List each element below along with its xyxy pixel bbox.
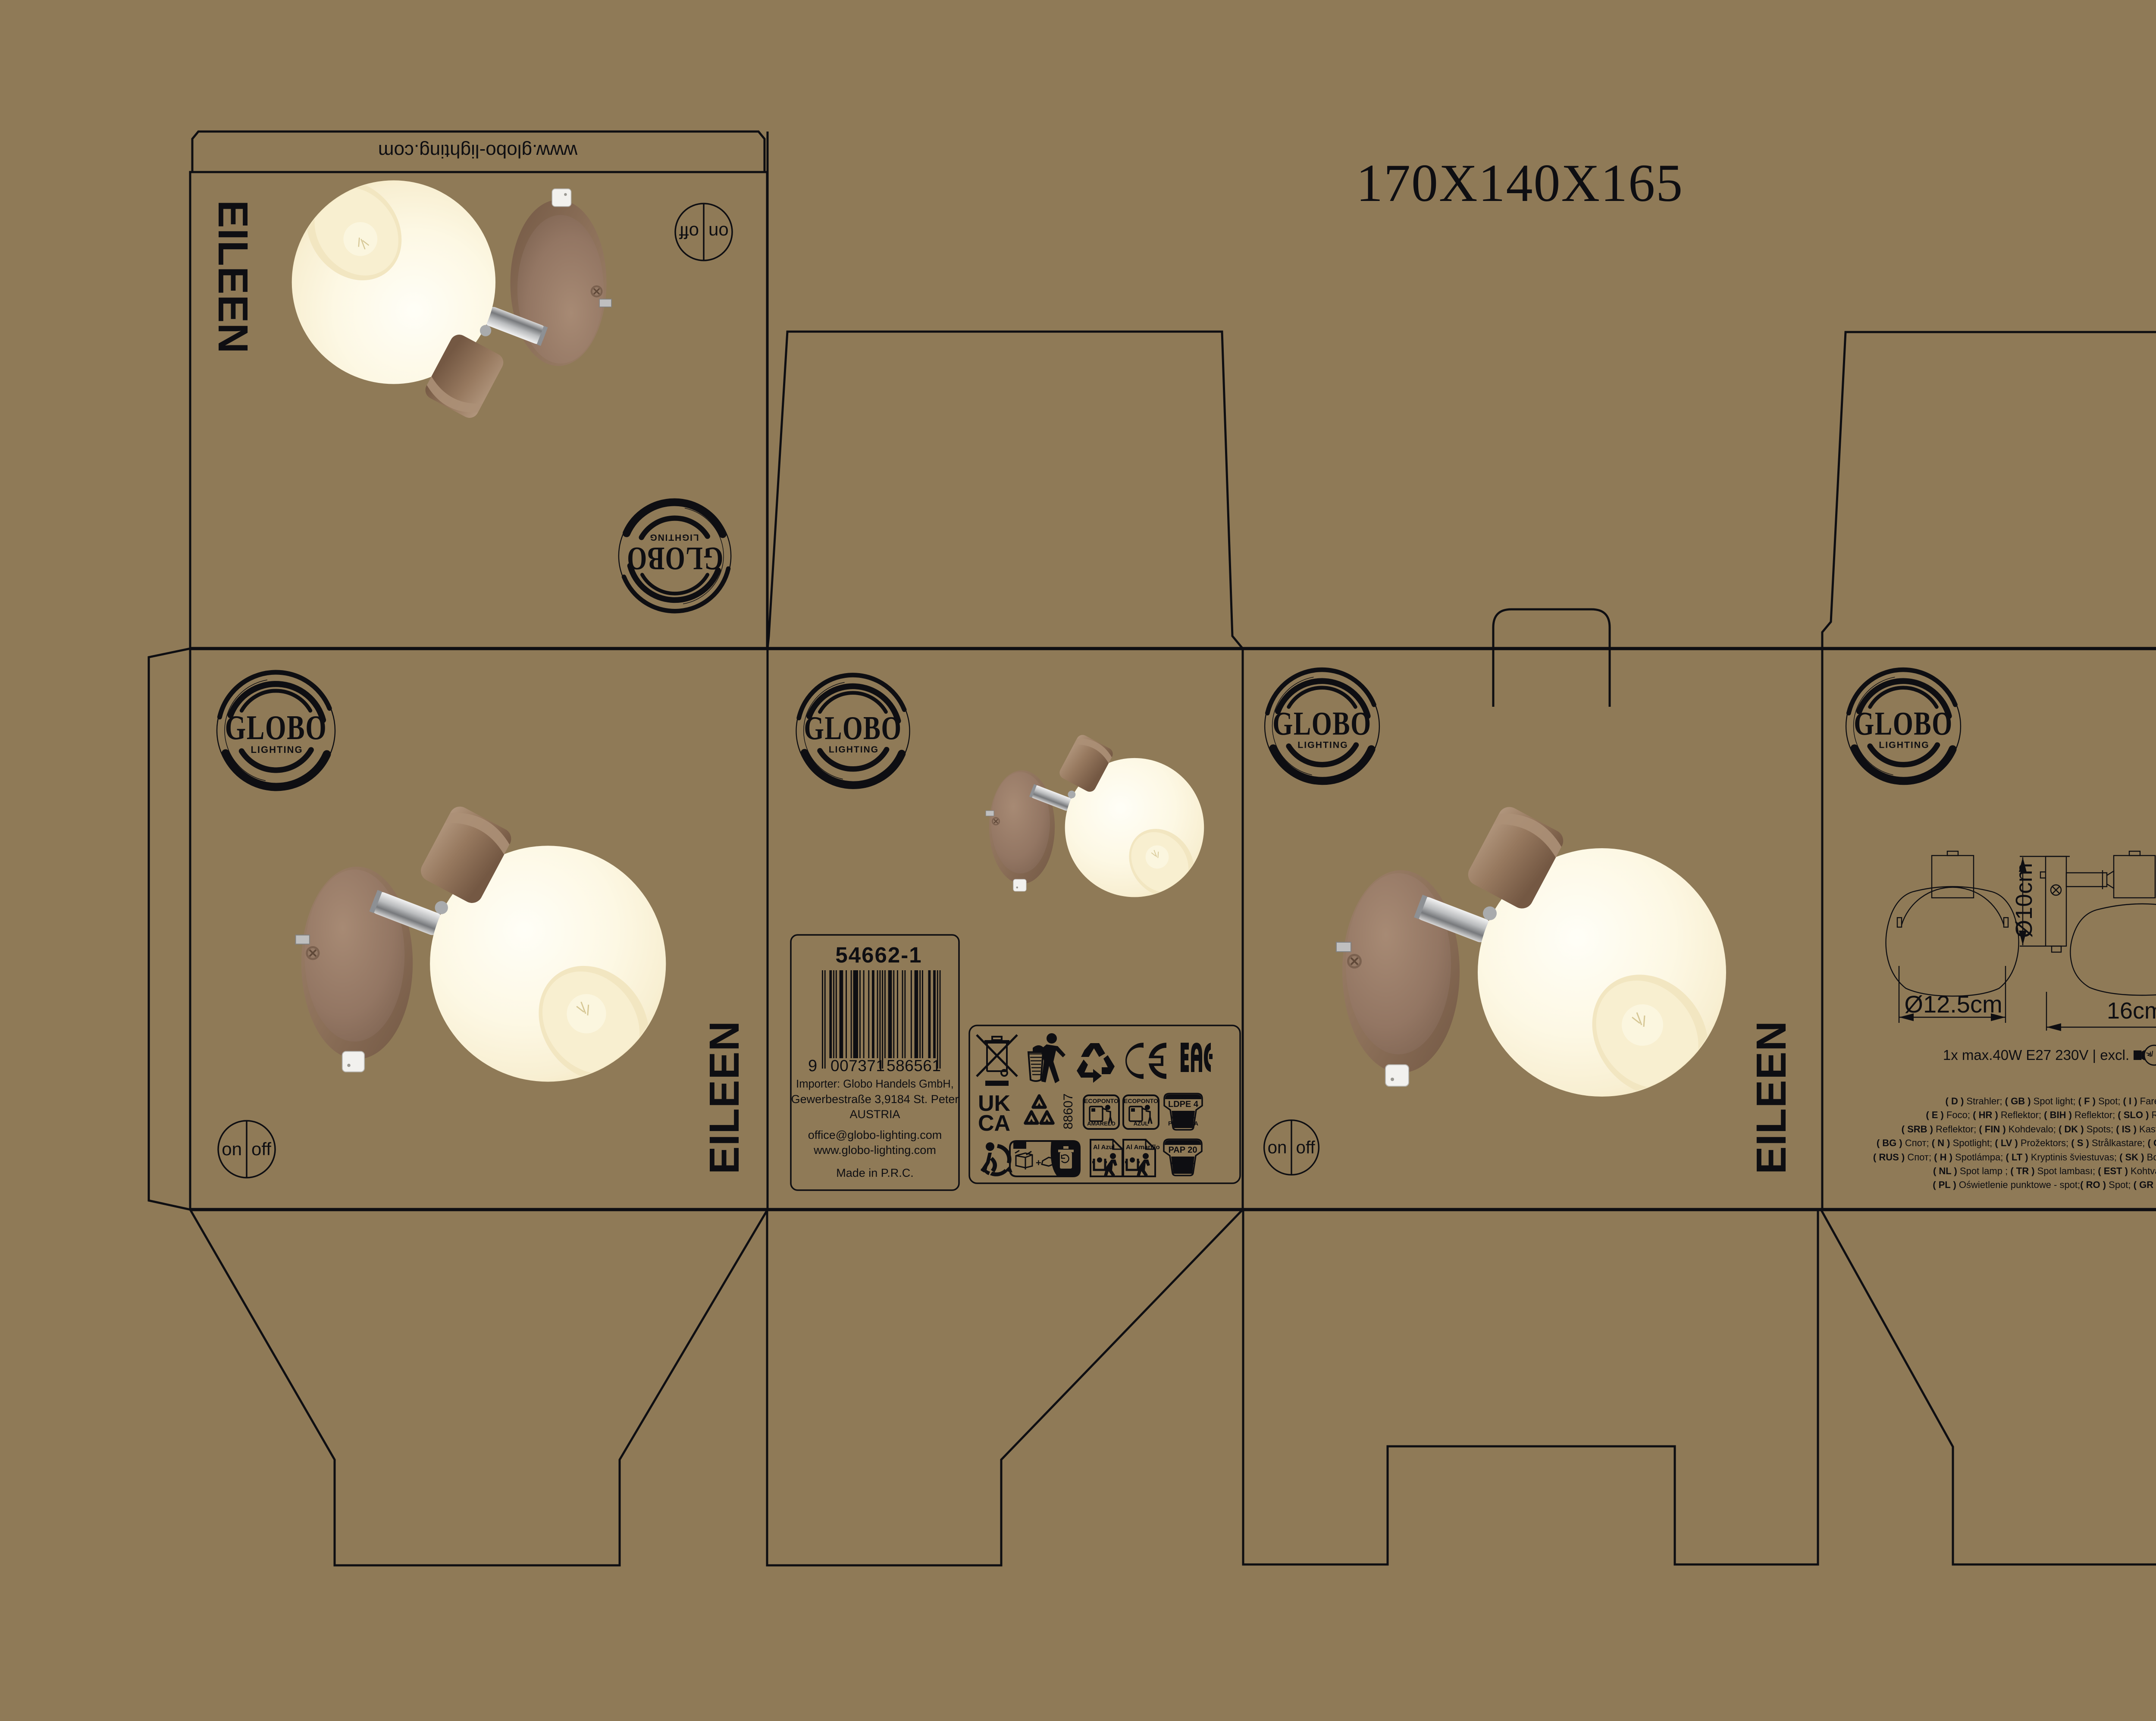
svg-text:9: 9	[808, 1057, 817, 1075]
svg-text:ECOPONTO: ECOPONTO	[1084, 1097, 1119, 1104]
svg-text:( E ) Foco; ( HR ) Reflektor;: ( E ) Foco; ( HR ) Reflektor; ( BIH ) Re…	[1926, 1110, 2156, 1120]
svg-text:54662-1: 54662-1	[835, 943, 922, 967]
svg-text:170X140X165: 170X140X165	[1356, 154, 1683, 213]
svg-text:www.globo-lighting.com: www.globo-lighting.com	[378, 141, 578, 162]
svg-text:SCATOLA: SCATOLA	[1173, 1141, 1193, 1145]
svg-text:EILEEN: EILEEN	[1748, 1021, 1795, 1174]
svg-text:AZUL: AZUL	[1134, 1120, 1149, 1127]
svg-text:( PL ) Oświetlenie punktowe -: ( PL ) Oświetlenie punktowe - spot;( RO …	[1933, 1179, 2156, 1190]
svg-text:FR: FR	[1016, 1142, 1024, 1149]
svg-text:EILEEN: EILEEN	[701, 1021, 748, 1174]
svg-text:586561: 586561	[887, 1057, 941, 1075]
svg-text:EILEEN: EILEEN	[210, 200, 257, 354]
svg-text:office@globo-lighting.com: office@globo-lighting.com	[808, 1129, 942, 1141]
svg-text:Made in P.R.C.: Made in P.R.C.	[836, 1166, 914, 1179]
svg-text:www.globo-lighting.com: www.globo-lighting.com	[813, 1144, 936, 1157]
svg-text:007371: 007371	[830, 1057, 885, 1075]
svg-text:88607: 88607	[1061, 1094, 1075, 1129]
svg-text:Ø10cm: Ø10cm	[2011, 863, 2037, 938]
svg-text:Ø12.5cm: Ø12.5cm	[1904, 991, 2002, 1018]
svg-text:Al Amarillo: Al Amarillo	[1126, 1144, 1160, 1151]
svg-text:Gewerbestraße 3,9184 St. Peter: Gewerbestraße 3,9184 St. Peter	[791, 1093, 959, 1106]
svg-text:( NL ) Spot lamp ; ( TR ) Spot: ( NL ) Spot lamp ; ( TR ) Spot lambası; …	[1933, 1166, 2156, 1176]
svg-text:PLASTICA: PLASTICA	[1168, 1120, 1198, 1127]
svg-text:1x max.40W E27 230V | excl.: 1x max.40W E27 230V | excl.	[1943, 1047, 2129, 1063]
svg-text:RACCOLTA: RACCOLTA	[1172, 1115, 1195, 1120]
svg-text:PAP 20: PAP 20	[1168, 1145, 1197, 1155]
svg-text:CARTA: CARTA	[1172, 1166, 1193, 1172]
svg-text:+: +	[1036, 1157, 1041, 1168]
svg-text:16cm: 16cm	[2107, 998, 2156, 1024]
svg-text:Importer: Globo Handels GmbH,: Importer: Globo Handels GmbH,	[796, 1078, 954, 1090]
svg-text:AUSTRIA: AUSTRIA	[849, 1108, 900, 1121]
svg-text:AMARELO: AMARELO	[1087, 1120, 1116, 1127]
svg-text:ECOPONTO: ECOPONTO	[1124, 1097, 1158, 1104]
svg-text:CA: CA	[978, 1111, 1010, 1136]
svg-text:( RUS ) Спот; ( H ) Spotlámpa;: ( RUS ) Спот; ( H ) Spotlámpa; ( LT ) Kr…	[1873, 1152, 2156, 1163]
svg-text:Al Azul: Al Azul	[1093, 1144, 1115, 1151]
svg-text:RACCOLTA: RACCOLTA	[1172, 1161, 1194, 1166]
svg-text:LDPE 4: LDPE 4	[1168, 1100, 1199, 1109]
svg-text:( SRB ) Reflektor; ( FIN ) Koh: ( SRB ) Reflektor; ( FIN ) Kohdevalo; ( …	[1902, 1124, 2156, 1135]
svg-text:( D ) Strahler; ( GB ) Spot li: ( D ) Strahler; ( GB ) Spot light; ( F )…	[1946, 1096, 2156, 1107]
svg-text:( BG ) Спот; ( N ) Spotlight;: ( BG ) Спот; ( N ) Spotlight; ( LV ) Pro…	[1877, 1138, 2156, 1148]
svg-text:CELLOPHANE: CELLOPHANE	[1169, 1095, 1198, 1100]
